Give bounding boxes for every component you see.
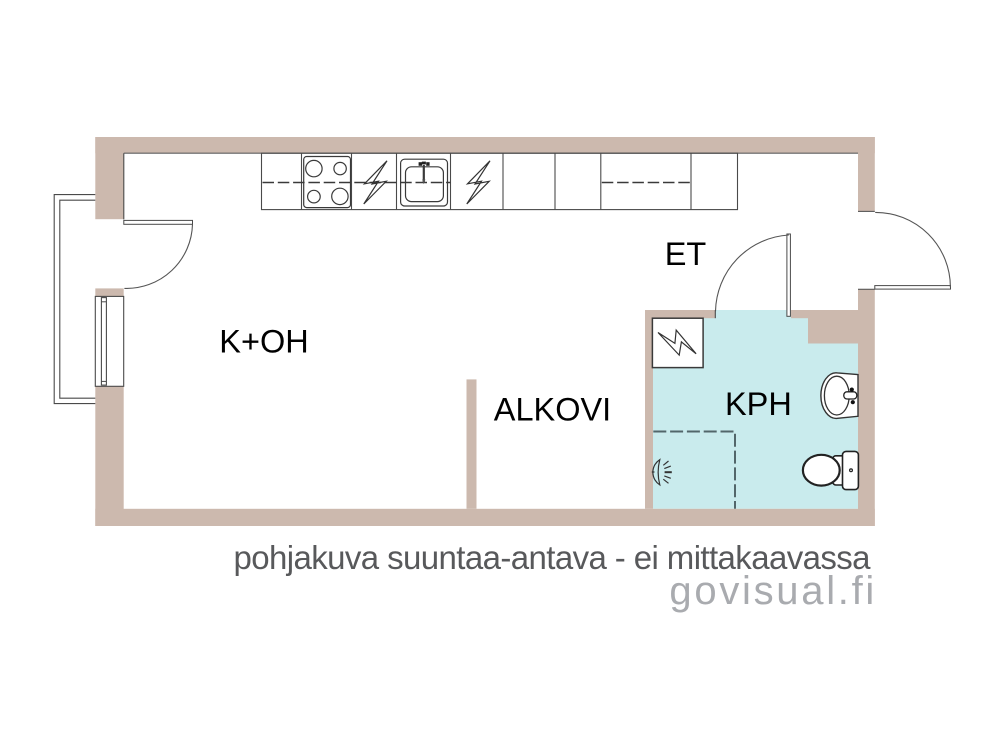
svg-text:ALKOVI: ALKOVI: [494, 392, 611, 428]
svg-text:govisual.fi: govisual.fi: [669, 569, 877, 613]
svg-text:KPH: KPH: [725, 386, 792, 422]
svg-text:ET: ET: [665, 236, 707, 272]
svg-text:K+OH: K+OH: [219, 324, 308, 360]
